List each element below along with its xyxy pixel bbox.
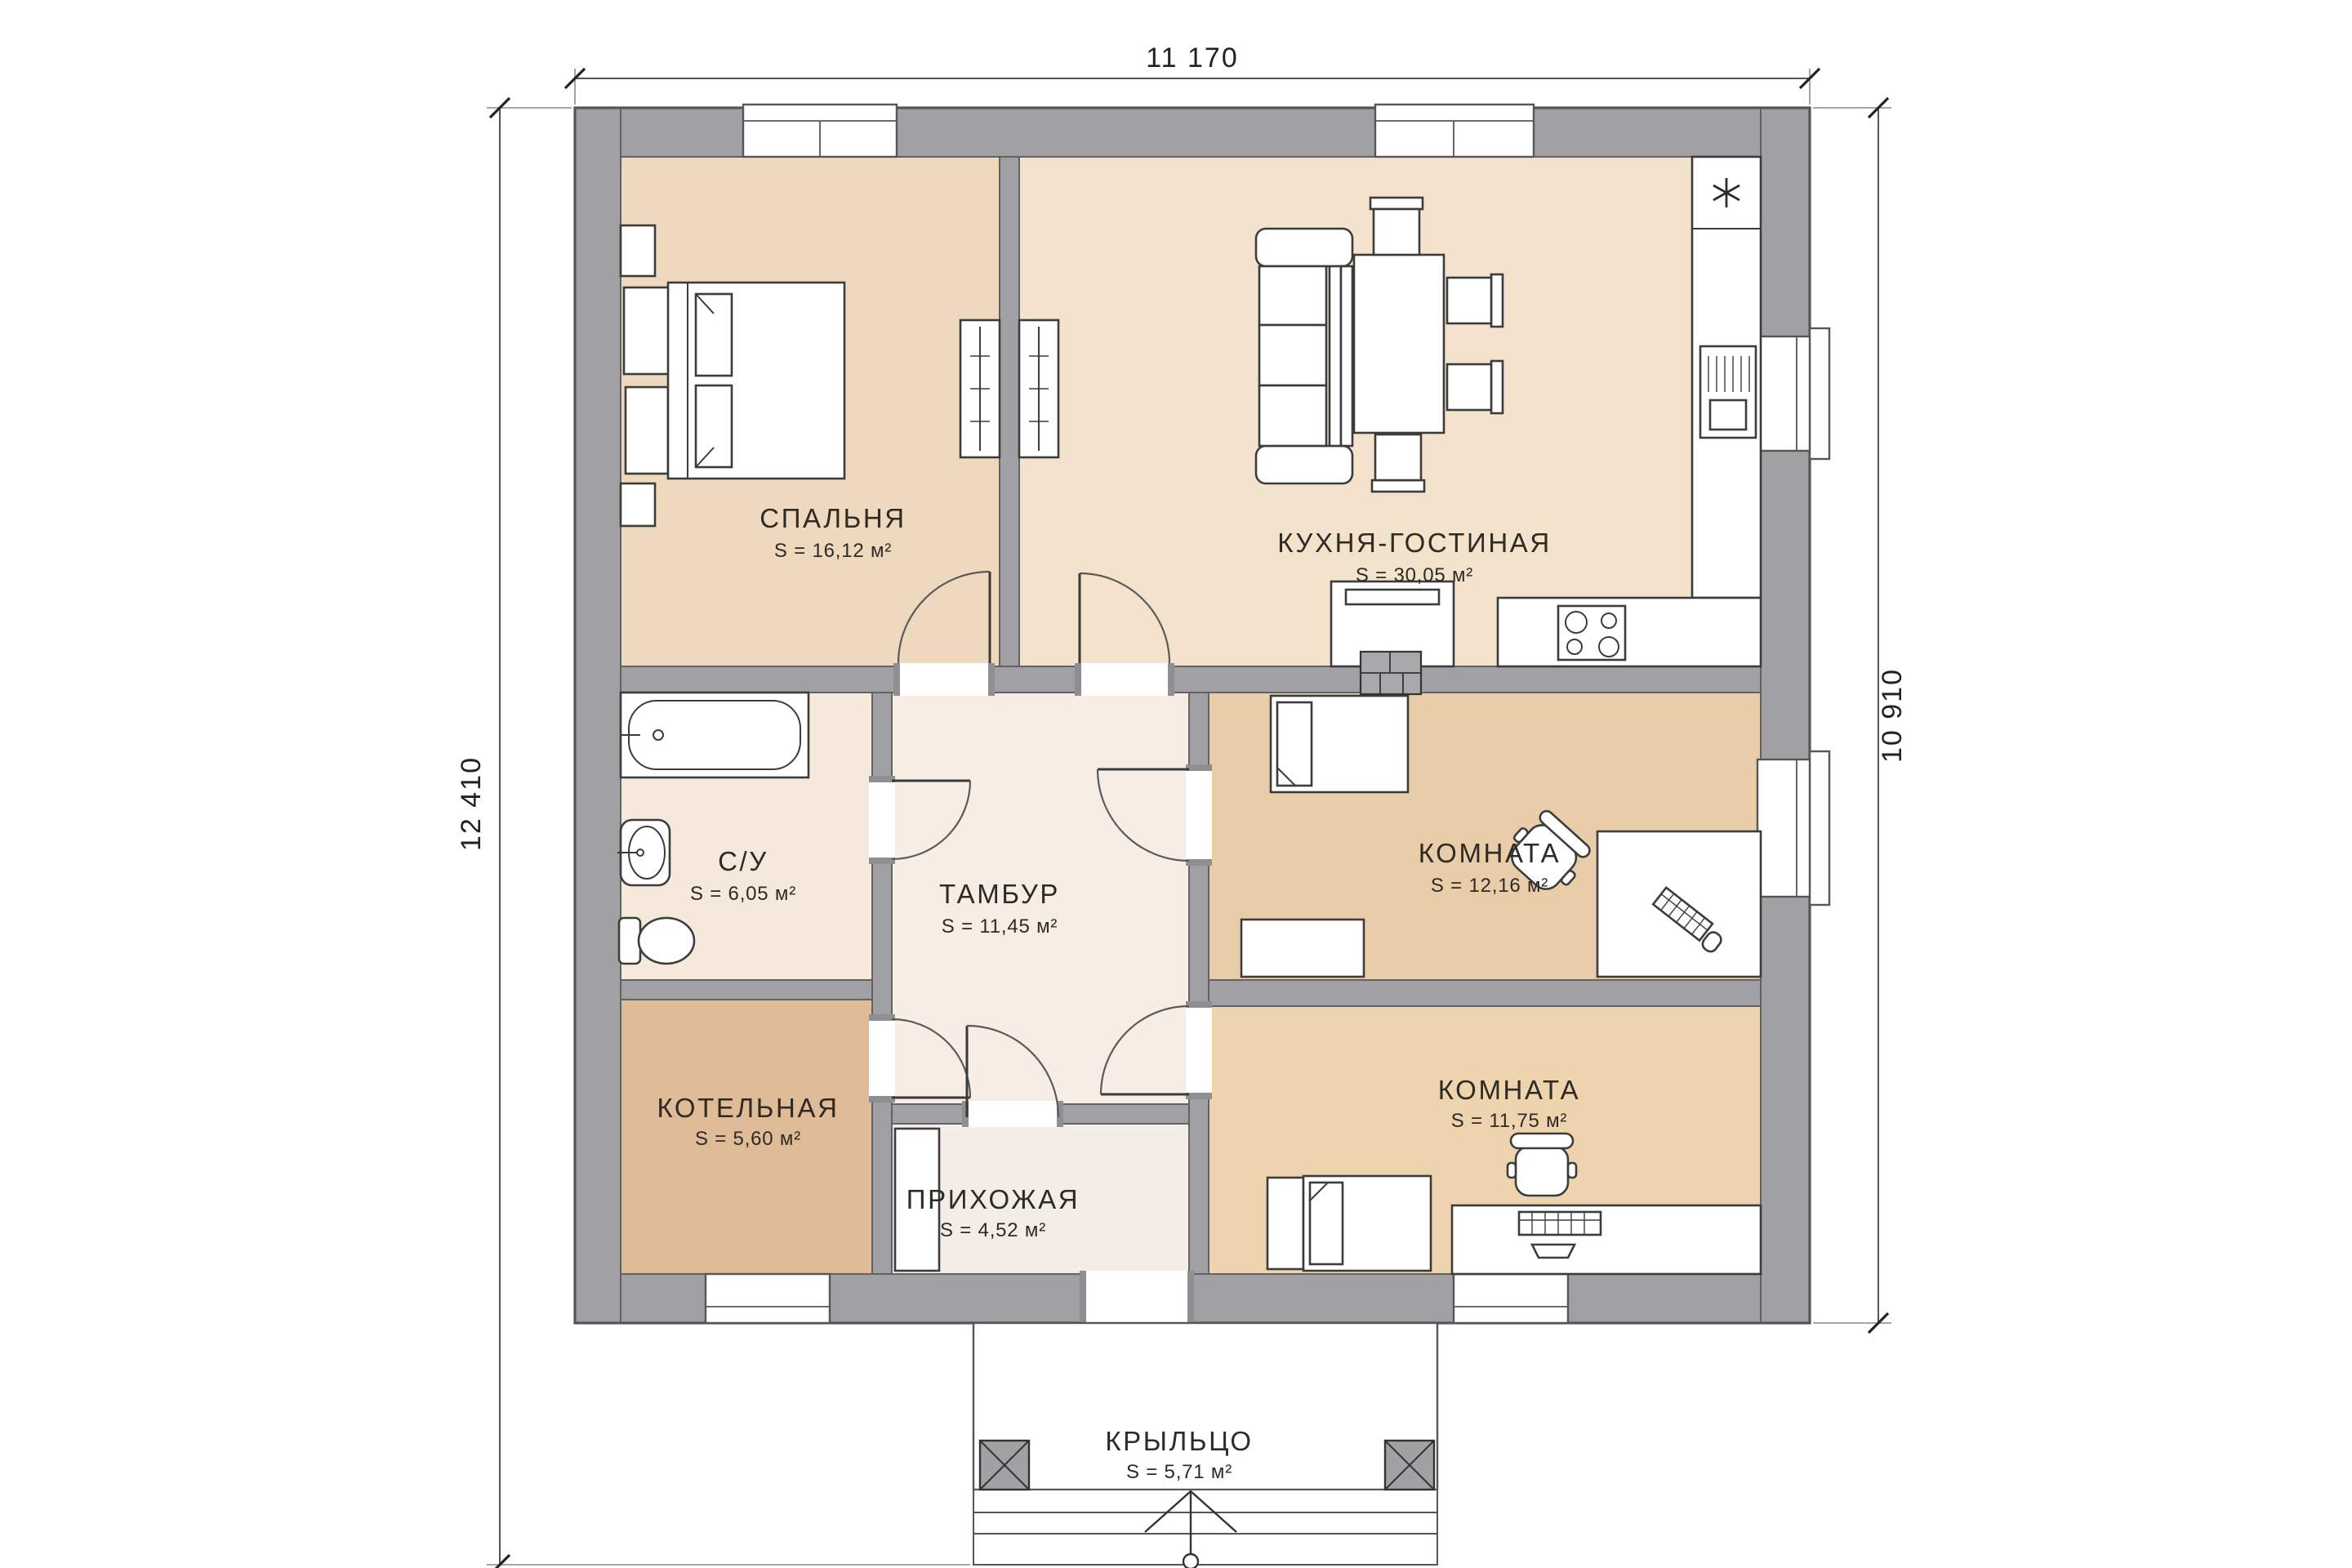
double-bed: [668, 283, 844, 479]
kitchen-counter-bottom: [1498, 598, 1761, 666]
single-bed-middle: [1271, 696, 1408, 792]
label-bedroom: СПАЛЬНЯ: [759, 503, 906, 533]
wall-bedroom-kitchen: [1000, 157, 1019, 666]
dish-dryer: [1700, 346, 1756, 438]
area-hallway: S = 4,52 м²: [940, 1219, 1046, 1241]
area-bedroom: S = 16,12 м²: [774, 540, 892, 562]
wall-exterior-left: [575, 108, 621, 1323]
label-room-bottom: КОМНАТА: [1438, 1075, 1581, 1105]
label-vestibule: ТАМБУР: [939, 879, 1060, 909]
opening-hallway: [967, 1101, 1058, 1127]
window-bedroom-top: [743, 105, 897, 157]
dimension-right: 10 910: [1813, 98, 1908, 1333]
pillow: [696, 294, 732, 376]
area-kitchen-living: S = 30,05 м²: [1356, 564, 1473, 586]
wall-rooms-divider: [1209, 980, 1761, 1006]
porch-column-right: [1385, 1441, 1434, 1490]
dining-chair-bottom: [1372, 434, 1424, 492]
wall-bathroom-boiler: [621, 980, 872, 1000]
area-bathroom: S = 6,05 м²: [690, 883, 796, 905]
opening-boiler: [869, 1019, 895, 1098]
area-vestibule: S = 11,45 м²: [942, 915, 1058, 938]
desk-bottom: [1452, 1205, 1761, 1274]
wall-exterior-right: [1761, 108, 1810, 1323]
sofa: [1256, 229, 1352, 483]
wall-interior-main-horizontal: [621, 666, 1761, 693]
area-porch: S = 5,71 м²: [1126, 1461, 1232, 1483]
area-room-bottom: S = 11,75 м²: [1451, 1110, 1567, 1132]
label-hallway: ПРИХОЖАЯ: [906, 1184, 1080, 1214]
chimney: [1361, 652, 1421, 694]
office-chair-bottom: [1508, 1134, 1576, 1196]
opening-room-bottom: [1186, 1006, 1212, 1094]
window-room-middle-right: [1757, 751, 1829, 905]
label-porch: КРЫЛЬЦО: [1105, 1426, 1253, 1456]
cabinet-bottom-room: [1267, 1178, 1303, 1269]
single-bed-bottom: [1303, 1176, 1431, 1271]
porch-step-1: [973, 1490, 1437, 1512]
dimension-top: 11 170: [565, 42, 1820, 105]
window-room-bottom: [1454, 1274, 1568, 1323]
window-boiler-bottom: [706, 1274, 830, 1323]
porch-step-2: [973, 1512, 1437, 1534]
opening-bedroom: [898, 663, 990, 696]
floor-plan-drawing: СПАЛЬНЯ S = 16,12 м² КУХНЯ-ГОСТИНАЯ S = …: [0, 0, 2352, 1568]
porch-step-3: [973, 1534, 1437, 1565]
wardrobe-striped-kitchen: [1019, 320, 1058, 457]
tv: [1346, 590, 1439, 604]
porch-column-left: [980, 1441, 1029, 1490]
toilet: [619, 918, 694, 964]
pillow: [696, 385, 732, 467]
dining-chair-right-2: [1447, 361, 1503, 413]
area-room-middle: S = 12,16 м²: [1431, 875, 1548, 897]
wardrobe-striped-bedroom: [960, 320, 1000, 457]
opening-bathroom: [869, 781, 895, 859]
bathtub: [621, 693, 808, 777]
opening-kitchen: [1080, 663, 1169, 696]
nightstand-upper: [624, 287, 671, 374]
washbasin: [617, 820, 670, 885]
window-kitchen-right: [1757, 328, 1829, 459]
dimension-width-value: 11 170: [1146, 42, 1238, 73]
bedroom-cabinet-top: [621, 225, 655, 276]
opening-room-middle: [1186, 769, 1212, 861]
dining-table: [1354, 255, 1444, 433]
label-bathroom: С/У: [718, 846, 768, 876]
opening-entry: [1085, 1271, 1189, 1326]
label-boiler: КОТЕЛЬНАЯ: [657, 1093, 839, 1123]
stove: [1558, 606, 1625, 660]
label-kitchen-living: КУХНЯ-ГОСТИНАЯ: [1277, 528, 1552, 558]
bedroom-cabinet-bottom: [621, 483, 655, 526]
dimension-right-value: 10 910: [1877, 668, 1908, 763]
page: СПАЛЬНЯ S = 16,12 м² КУХНЯ-ГОСТИНАЯ S = …: [0, 0, 2352, 1568]
area-boiler: S = 5,60 м²: [695, 1128, 801, 1150]
mouse: [1532, 1245, 1575, 1258]
kitchen-counter-right: [1692, 157, 1761, 598]
dining-chair-top: [1370, 198, 1423, 255]
dimension-left-value: 12 410: [456, 756, 487, 851]
wardrobe-middle: [1241, 920, 1364, 977]
label-room-middle: КОМНАТА: [1419, 838, 1561, 868]
nightstand-lower: [626, 387, 668, 474]
window-kitchen-top: [1375, 105, 1534, 157]
dining-chair-right-1: [1447, 274, 1503, 327]
